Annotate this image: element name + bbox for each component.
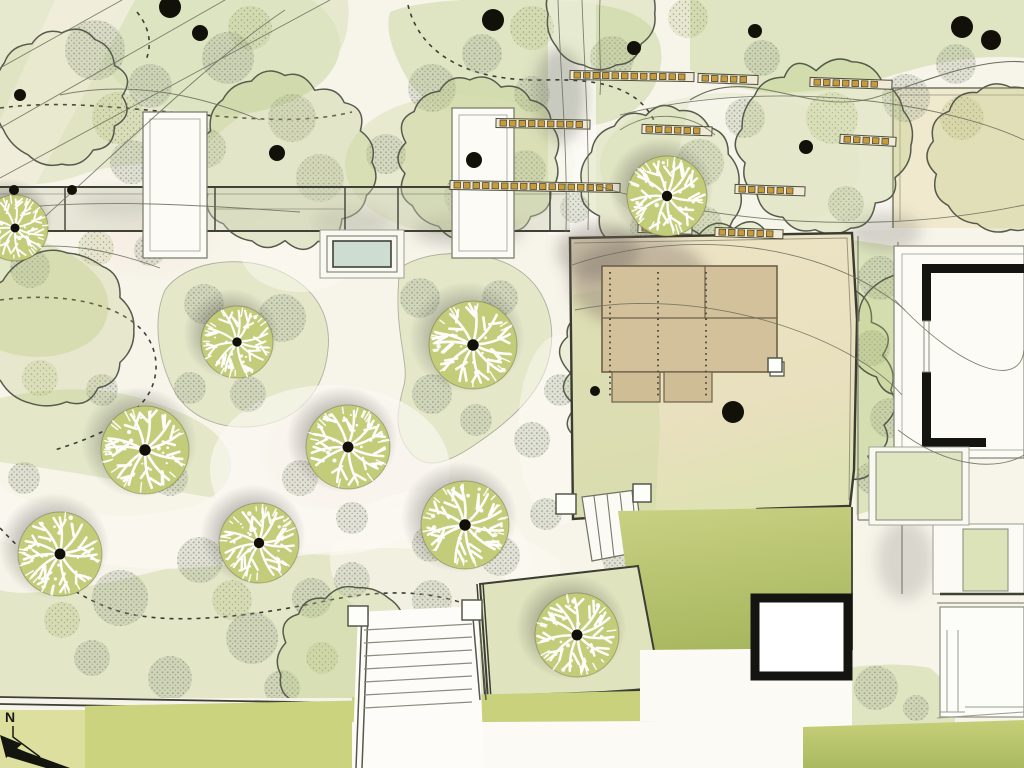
fence-segment [576, 121, 583, 127]
tree-texture-dot [579, 650, 581, 652]
fence-segment [655, 126, 662, 132]
shrub [514, 422, 550, 458]
specimen-trunk-dot [951, 16, 973, 38]
fence-segment [463, 182, 470, 188]
structure-bottom-right [933, 524, 1024, 718]
wall-segment [922, 273, 931, 321]
round-tree [183, 289, 278, 380]
tree-texture-dot [166, 446, 169, 449]
round-tree [608, 138, 714, 239]
tree-texture-dot [40, 522, 44, 526]
tree-texture-dot [149, 468, 152, 471]
fence-segment [492, 183, 499, 189]
fence-segment [640, 73, 647, 79]
shrub [92, 570, 148, 626]
outbuilding [755, 598, 848, 676]
tree-texture-dot [14, 235, 18, 239]
round-tree [287, 386, 398, 492]
tree-texture-dot [360, 445, 363, 448]
tree-texture-dot [569, 665, 572, 668]
tree-texture-dot [281, 538, 283, 540]
north-label: N [5, 709, 15, 725]
specimen-trunk-dot [748, 24, 762, 38]
house-top-right [894, 246, 1024, 458]
round-tree [0, 493, 109, 599]
fence-segment [650, 73, 657, 79]
fence-segment [528, 121, 535, 127]
tree-texture-dot [105, 453, 107, 455]
shrub [744, 40, 780, 76]
tree-trunk-dot [467, 339, 478, 350]
tree-texture-dot [458, 494, 462, 498]
specimen-trunk-dot [9, 185, 19, 195]
shrub [212, 580, 252, 620]
tree-texture-dot [278, 525, 281, 528]
tree-texture-dot [579, 666, 581, 668]
tree-texture-dot [57, 531, 61, 535]
tree-texture-dot [576, 622, 580, 626]
planter [876, 452, 962, 520]
tree-texture-dot [157, 446, 161, 450]
tree-texture-dot [350, 414, 352, 416]
fence-strip [642, 124, 712, 135]
tree-texture-dot [274, 558, 276, 560]
specimen-trunk-dot [627, 41, 641, 55]
tree-texture-dot [328, 414, 331, 417]
fence-segment [577, 184, 584, 190]
tree-texture-dot [455, 330, 458, 333]
fence-segment [631, 73, 638, 79]
tree-texture-dot [123, 448, 126, 451]
tree-texture-dot [245, 356, 247, 358]
side-planter [869, 447, 969, 525]
fence-segment [659, 74, 666, 80]
tree-texture-dot [240, 523, 242, 525]
tree-texture-dot [247, 548, 251, 552]
shrub [8, 462, 40, 494]
tree-texture-dot [15, 218, 18, 221]
tree-texture-dot [41, 585, 44, 588]
fence-segment [473, 182, 480, 188]
tree-texture-dot [477, 528, 482, 533]
fence-segment [861, 81, 868, 87]
fence-segment [566, 121, 573, 127]
tree-texture-dot [35, 210, 38, 213]
round-tree [409, 282, 525, 393]
tree-texture-dot [493, 532, 498, 537]
tree-texture-dot [474, 370, 478, 374]
wall-segment [922, 438, 986, 447]
fence-segment [777, 187, 784, 193]
fence-segment [568, 184, 575, 190]
fence-segment [721, 76, 728, 82]
pier-post [348, 606, 368, 626]
fence-segment [520, 183, 527, 189]
fence-segment [786, 188, 793, 194]
fence-segment [501, 183, 508, 189]
tree-trunk-dot [254, 538, 264, 548]
shrub [174, 372, 206, 404]
tree-texture-dot [497, 359, 500, 362]
water-trough-basin [333, 241, 391, 267]
tree-texture-dot [478, 488, 481, 491]
round-tree [81, 387, 197, 498]
tree-texture-dot [247, 326, 250, 329]
tree-texture-dot [455, 357, 457, 359]
tree-trunk-dot [662, 191, 672, 201]
tree-texture-dot [109, 451, 113, 455]
fence-segment [740, 76, 747, 82]
deck-panel [602, 266, 777, 372]
shrub [44, 602, 80, 638]
specimen-trunk-dot [14, 89, 26, 101]
fence-segment [530, 183, 537, 189]
specimen-trunk-dot [981, 30, 1001, 50]
tree-texture-dot [127, 430, 131, 434]
tree-trunk-dot [232, 337, 241, 346]
tree-texture-dot [438, 332, 440, 334]
tree-texture-dot [679, 182, 681, 184]
tree-texture-dot [28, 545, 33, 550]
specimen-trunk-dot [192, 25, 208, 41]
pier-post [462, 600, 482, 620]
fence-segment [882, 138, 889, 144]
tree-texture-dot [249, 314, 253, 318]
tree-texture-dot [663, 184, 667, 188]
tree-texture-dot [36, 554, 39, 557]
fence-segment [612, 73, 619, 79]
fence-segment [719, 229, 726, 235]
fence-segment [500, 120, 507, 126]
tree-texture-dot [256, 347, 259, 350]
fence-segment [583, 72, 590, 78]
tree-texture-dot [24, 226, 26, 228]
tree-texture-dot [242, 360, 245, 363]
fence-segment [511, 183, 518, 189]
fence-segment [574, 72, 581, 78]
tree-texture-dot [481, 352, 484, 355]
building-footprint [755, 598, 848, 676]
tree-texture-dot [566, 643, 570, 647]
tree-texture-dot [432, 525, 436, 529]
fence-segment [547, 121, 554, 127]
tree-texture-dot [31, 227, 35, 231]
tree-texture-dot [501, 368, 506, 373]
shrub [462, 34, 502, 74]
wall-segment [922, 264, 1024, 273]
fence-segment [739, 186, 746, 192]
shrub [336, 502, 368, 534]
round-tree [516, 574, 627, 680]
fence-segment [557, 121, 564, 127]
fence-segment [833, 80, 840, 86]
tree-texture-dot [53, 525, 56, 528]
tree-texture-dot [21, 235, 24, 238]
tree-texture-dot [662, 161, 665, 164]
tree-texture-dot [560, 641, 563, 644]
specimen-trunk-dot [466, 152, 482, 168]
tree-texture-dot [244, 325, 246, 327]
tree-texture-dot [590, 649, 594, 653]
fence-segment [823, 79, 830, 85]
tree-texture-dot [129, 438, 134, 443]
tree-texture-dot [356, 424, 359, 427]
tree-texture-dot [568, 605, 570, 607]
tree-texture-dot [247, 511, 252, 516]
shrub [460, 404, 492, 436]
tree-texture-dot [678, 206, 683, 211]
tree-texture-dot [45, 554, 48, 557]
tree-texture-dot [141, 463, 143, 465]
tree-texture-dot [596, 603, 601, 608]
fence-segment [669, 74, 676, 80]
fence-segment [702, 75, 709, 81]
tree-texture-dot [155, 481, 157, 483]
fence-segment [871, 81, 878, 87]
fence-segment [757, 230, 764, 236]
pier-post [633, 484, 651, 502]
tree-texture-dot [214, 336, 216, 338]
tree-texture-dot [380, 433, 383, 436]
tree-texture-dot [233, 541, 236, 544]
tree-texture-dot [465, 560, 467, 562]
planter [963, 529, 1008, 591]
building-footprint [940, 607, 1024, 717]
tree-texture-dot [225, 341, 228, 344]
tree-texture-dot [373, 464, 377, 468]
tree-texture-dot [54, 577, 57, 580]
specimen-trunk-dot [269, 145, 285, 161]
tree-texture-dot [57, 564, 60, 567]
tree-texture-dot [479, 509, 483, 513]
wall-segment [922, 372, 931, 440]
fence-strip [698, 73, 758, 84]
fence-segment [730, 76, 737, 82]
fence-segment [767, 187, 774, 193]
tree-texture-dot [17, 200, 20, 203]
tree-texture-dot [587, 647, 589, 649]
tree-texture-dot [688, 167, 690, 169]
tree-texture-dot [28, 233, 31, 236]
tree-texture-dot [253, 315, 257, 319]
fence-segment [538, 121, 545, 127]
fence-segment [872, 138, 879, 144]
deck-panel [612, 372, 660, 402]
tree-texture-dot [639, 202, 643, 206]
tree-texture-dot [353, 429, 355, 431]
tree-trunk-dot [139, 444, 150, 455]
tree-texture-dot [317, 425, 320, 428]
tree-texture-dot [571, 599, 576, 604]
landscape-plan-drawing: N [0, 0, 1024, 768]
tree-trunk-dot [459, 519, 470, 530]
specimen-trunk-dot [722, 401, 744, 423]
tree-texture-dot [249, 527, 254, 532]
fence-segment [758, 187, 765, 193]
shadow [877, 520, 933, 600]
steps-well [352, 606, 484, 768]
fence-segment [454, 182, 461, 188]
tree-texture-dot [460, 345, 462, 347]
gate-structure [143, 112, 207, 258]
fence-segment [678, 74, 685, 80]
fence-segment [842, 80, 849, 86]
tree-texture-dot [436, 344, 440, 348]
grass-strip [803, 720, 1024, 768]
tree-texture-dot [249, 533, 252, 536]
building-footprint [894, 246, 1024, 458]
fence-strip [570, 70, 694, 81]
tree-texture-dot [162, 451, 165, 454]
tree-texture-dot [240, 354, 243, 357]
tree-texture-dot [166, 462, 168, 464]
tree-trunk-dot [343, 442, 354, 453]
tree-texture-dot [651, 184, 655, 188]
shrub [230, 376, 266, 412]
tree-trunk-dot [572, 630, 583, 641]
tree-texture-dot [277, 550, 279, 552]
fence-segment [674, 127, 681, 133]
tree-texture-dot [490, 363, 493, 366]
tree-texture-dot [332, 458, 336, 462]
tree-texture-dot [242, 526, 244, 528]
tree-texture-dot [216, 360, 221, 365]
tree-texture-dot [679, 190, 682, 193]
tree-trunk-dot [55, 549, 66, 560]
fence-segment [549, 184, 556, 190]
fence-segment [844, 136, 851, 142]
shrub [903, 695, 929, 721]
fence-segment [853, 137, 860, 143]
fence-strip [735, 184, 805, 195]
tree-texture-dot [485, 543, 487, 545]
fence-segment [509, 120, 516, 126]
tree-texture-dot [369, 438, 373, 442]
tree-texture-dot [123, 440, 127, 444]
tree-texture-dot [332, 439, 335, 442]
tree-texture-dot [49, 539, 52, 542]
fence-segment [593, 72, 600, 78]
shrub [936, 44, 976, 84]
tree-texture-dot [664, 181, 667, 184]
tree-texture-dot [635, 201, 639, 205]
main-steps [352, 606, 486, 768]
fence-strip [496, 118, 590, 129]
tree-texture-dot [30, 559, 34, 563]
pier-post [768, 358, 782, 372]
tree-texture-dot [553, 652, 557, 656]
shrub [74, 640, 110, 676]
tree-texture-dot [227, 365, 231, 369]
tree-texture-dot [369, 423, 372, 426]
fence-segment [766, 231, 773, 237]
fence-segment [665, 127, 672, 133]
tree-texture-dot [326, 450, 330, 454]
shrub [854, 666, 898, 710]
round-tree [200, 485, 306, 586]
tree-texture-dot [500, 525, 503, 528]
tree-texture-dot [472, 361, 475, 364]
tree-texture-dot [342, 419, 345, 422]
specimen-trunk-dot [799, 140, 813, 154]
specimen-trunk-dot [590, 386, 600, 396]
specimen-trunk-dot [482, 9, 504, 31]
water-trough [320, 230, 404, 278]
deck-panel [664, 372, 712, 402]
tree-texture-dot [253, 527, 256, 530]
tree-texture-dot [68, 516, 73, 521]
tree-texture-dot [458, 536, 462, 540]
tree-texture-dot [484, 336, 487, 339]
tree-texture-dot [230, 352, 233, 355]
fence-segment [814, 79, 821, 85]
tree-texture-dot [472, 532, 476, 536]
fence-segment [693, 128, 700, 134]
fence-segment [558, 184, 565, 190]
tree-texture-dot [685, 206, 688, 209]
shrub [148, 656, 192, 700]
tree-texture-dot [77, 557, 79, 559]
fence-strip [715, 227, 783, 238]
tree-trunk-dot [11, 224, 20, 233]
tree-texture-dot [562, 617, 566, 621]
round-tree [401, 462, 517, 573]
fence-segment [863, 137, 870, 143]
tree-texture-dot [690, 184, 695, 189]
tree-texture-dot [7, 239, 10, 242]
tree-texture-dot [692, 200, 695, 203]
fence-segment [747, 230, 754, 236]
fence-segment [482, 183, 489, 189]
tree-texture-dot [431, 514, 436, 519]
fence-segment [539, 184, 546, 190]
fence-segment [621, 73, 628, 79]
pier-post [556, 494, 576, 514]
specimen-trunk-dot [67, 185, 77, 195]
tree-texture-dot [453, 334, 458, 339]
tree-texture-dot [4, 242, 7, 245]
site-plan-canvas: N [0, 0, 1024, 768]
fence-segment [602, 73, 609, 79]
fence-segment [748, 186, 755, 192]
gate-opening [143, 112, 207, 258]
fence-segment [852, 80, 859, 86]
tree-texture-dot [245, 368, 249, 372]
tree-texture-dot [140, 416, 143, 419]
fence-segment [519, 120, 526, 126]
fence-segment [711, 75, 718, 81]
fence-segment [684, 127, 691, 133]
fence-segment [728, 229, 735, 235]
fence-segment [646, 126, 653, 132]
tree-texture-dot [466, 494, 470, 498]
tree-texture-dot [561, 668, 565, 672]
fence-segment [738, 230, 745, 236]
tree-texture-dot [654, 203, 659, 208]
tree-texture-dot [283, 519, 285, 521]
